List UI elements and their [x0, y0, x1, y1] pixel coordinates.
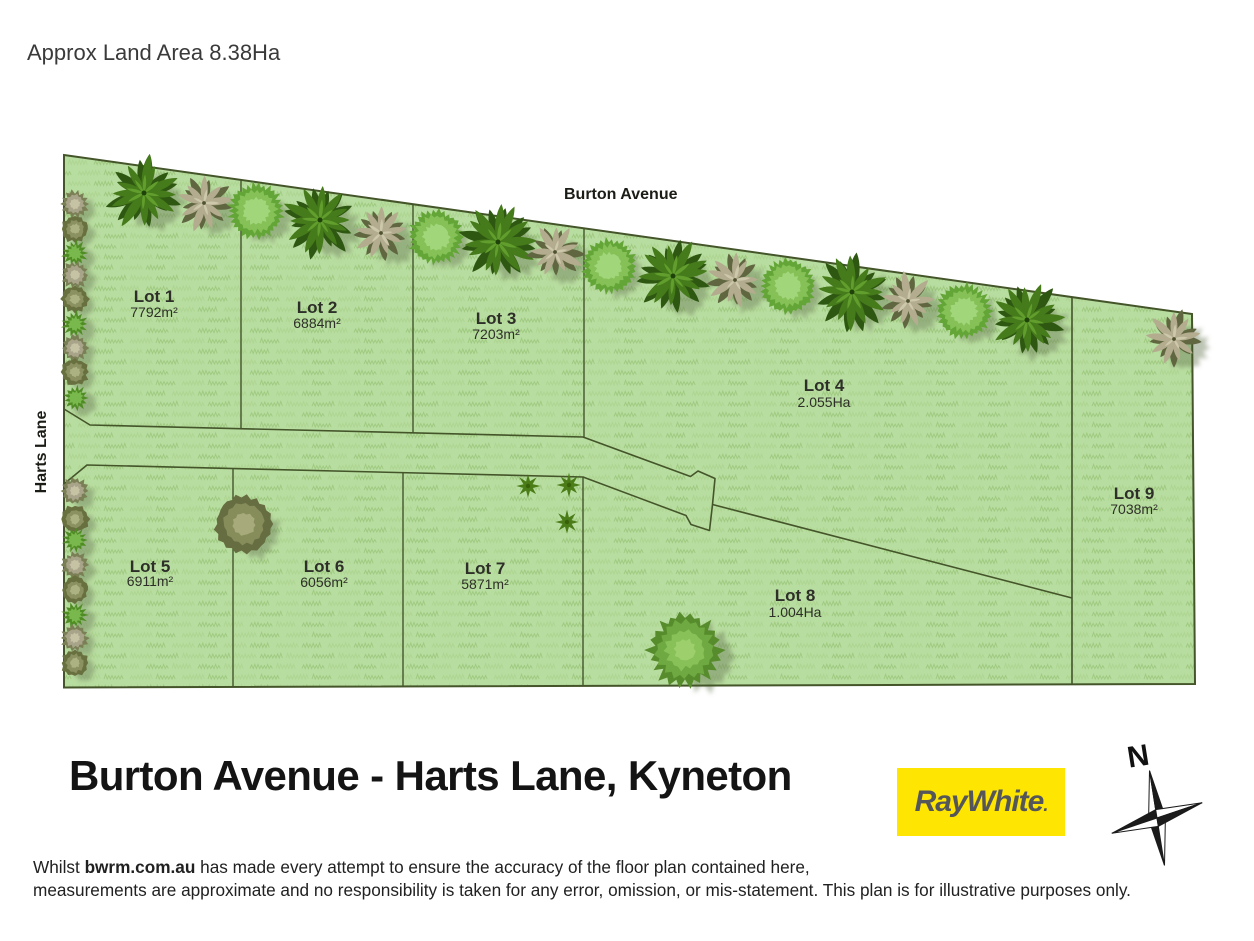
svg-text:2.055Ha: 2.055Ha: [798, 394, 851, 410]
svg-text:5871m²: 5871m²: [461, 576, 509, 592]
svg-text:6884m²: 6884m²: [293, 315, 341, 331]
svg-text:N: N: [1125, 740, 1152, 775]
svg-text:7203m²: 7203m²: [472, 326, 520, 342]
svg-text:6056m²: 6056m²: [300, 574, 348, 590]
svg-text:Harts Lane: Harts Lane: [33, 411, 50, 494]
svg-text:7792m²: 7792m²: [130, 304, 178, 320]
svg-text:1.004Ha: 1.004Ha: [769, 604, 822, 620]
svg-text:6911m²: 6911m²: [127, 573, 174, 589]
svg-text:Lot 8: Lot 8: [775, 586, 816, 605]
svg-text:Lot 4: Lot 4: [804, 376, 845, 395]
svg-text:Burton Avenue: Burton Avenue: [564, 186, 678, 203]
svg-text:7038m²: 7038m²: [1110, 501, 1158, 517]
